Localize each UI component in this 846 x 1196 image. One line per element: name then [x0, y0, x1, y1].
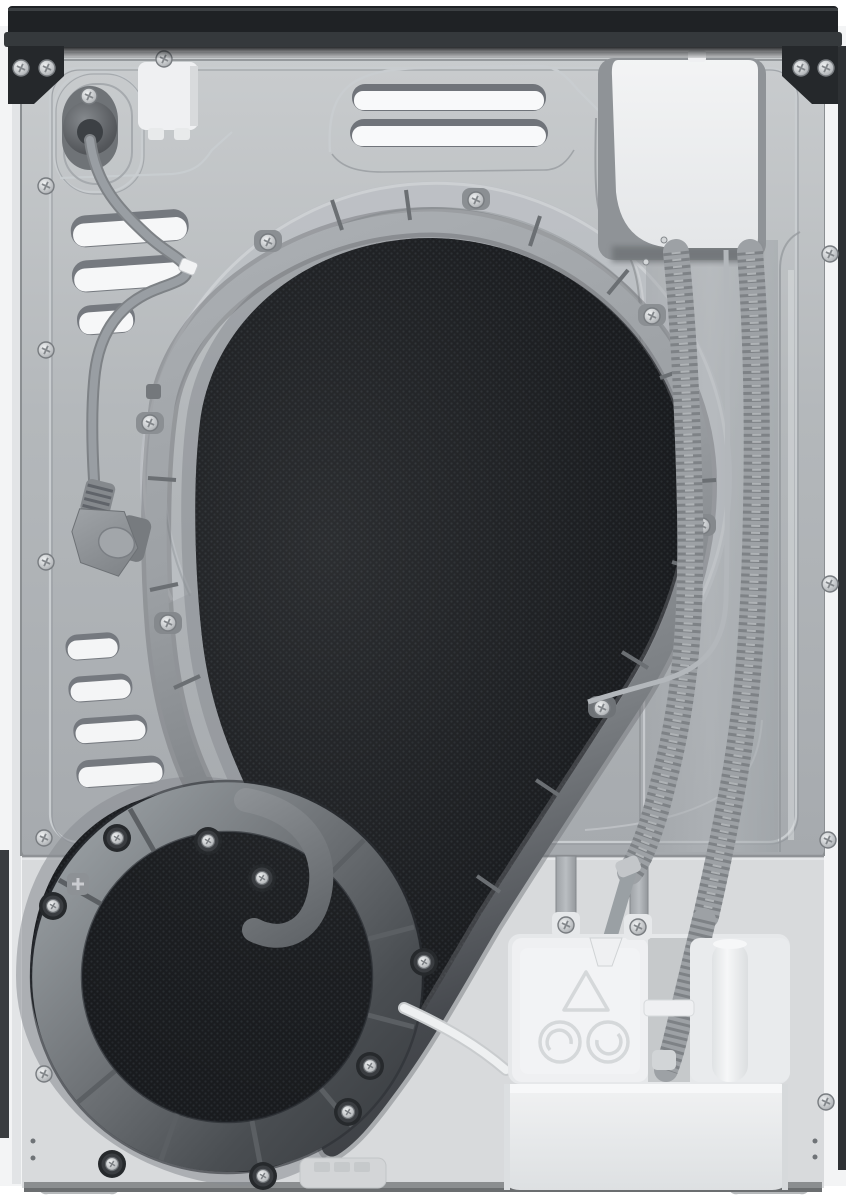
- hook-boss: [248, 864, 276, 892]
- panel-screw: [822, 246, 838, 262]
- bracket-screw: [13, 60, 29, 76]
- vent-slot-face: [67, 638, 118, 660]
- hose-clip: [644, 1000, 694, 1016]
- panel-screw: [36, 1066, 52, 1082]
- condensate-unit-group: Condensate pump unit Embossed warning tr…: [508, 912, 790, 1084]
- cylinder-cap: [713, 939, 747, 949]
- tray-slot: [334, 1162, 350, 1172]
- bracket-screw: [818, 60, 834, 76]
- bucket-shade-right: [782, 1084, 788, 1190]
- junction-box-tab: [174, 128, 190, 140]
- edge-shadow-right: [838, 46, 846, 1170]
- vent-slot-face: [354, 91, 544, 110]
- side-strip-left: [12, 56, 21, 1184]
- cap-top-highlight: [8, 8, 838, 11]
- gasket-screw: [160, 615, 176, 631]
- junction-box-shade: [190, 66, 198, 126]
- unit-screw: [630, 919, 646, 935]
- dryer-rear-photo: Tumble dryer, rear view Leveling foot Si…: [0, 0, 846, 1196]
- panel-screw: [818, 1094, 834, 1110]
- panel-screw: [820, 832, 836, 848]
- bucket-lip: [504, 1084, 788, 1093]
- top-cap-lip: [4, 32, 842, 47]
- bucket-shade-left: [504, 1084, 510, 1190]
- vent-slot: [352, 84, 546, 111]
- pin: [661, 237, 667, 243]
- panel-screw: [822, 576, 838, 592]
- ring-boss: [39, 892, 67, 920]
- gasket-screw: [594, 700, 610, 716]
- vent-slot: [68, 673, 134, 703]
- condensate-bucket: [504, 1084, 788, 1190]
- gasket-clip: [146, 384, 161, 399]
- float-cylinder: [712, 942, 748, 1082]
- hose-collar-lower: [652, 1050, 676, 1070]
- vent-slot: [73, 714, 149, 745]
- tray-emboss: Stamped tray mark: [300, 1158, 386, 1188]
- terminal-cover: [612, 60, 758, 248]
- ring-boss: [356, 1052, 384, 1080]
- bracket-screw: [39, 60, 55, 76]
- pinhole: [31, 1156, 36, 1161]
- unit-screw: [558, 917, 574, 933]
- gasket-screw: [142, 415, 158, 431]
- vent-slot: [65, 632, 121, 662]
- ring-boss: [410, 948, 438, 976]
- pin: [643, 259, 649, 265]
- pinhole: [31, 1139, 36, 1144]
- terminal-cover-group: Top-right service cover: [598, 50, 766, 262]
- condensate-bucket-group: Condensate drawer: [504, 1084, 788, 1190]
- panel-screw: [38, 178, 54, 194]
- bracket-screw: [793, 60, 809, 76]
- ring-boss: [103, 824, 131, 852]
- gasket-screw: [644, 308, 660, 324]
- plus-boss: [67, 873, 89, 895]
- pinhole: [813, 1139, 818, 1144]
- ring-boss: [249, 1162, 277, 1190]
- ring-boss: [98, 1150, 126, 1178]
- tray-slot: [354, 1162, 370, 1172]
- inlet-screw: [81, 88, 97, 104]
- tray-slot: [314, 1162, 330, 1172]
- vent-slot-face: [352, 126, 546, 146]
- ring-boss: [194, 827, 222, 855]
- junction-box-tab: [148, 128, 164, 140]
- panel-screw: [38, 554, 54, 570]
- gasket-screw: [468, 192, 484, 208]
- tick: [148, 478, 176, 480]
- vent-slot: [350, 119, 548, 147]
- junction-box-group: White junction box: [138, 51, 198, 140]
- junction-box: [138, 62, 198, 130]
- panel-screw: [38, 342, 54, 358]
- pinhole: [813, 1155, 818, 1160]
- panel-screw: [36, 830, 52, 846]
- ring-boss: [334, 1098, 362, 1126]
- edge-shadow-left: [0, 850, 9, 1138]
- gasket-screw: [260, 234, 276, 250]
